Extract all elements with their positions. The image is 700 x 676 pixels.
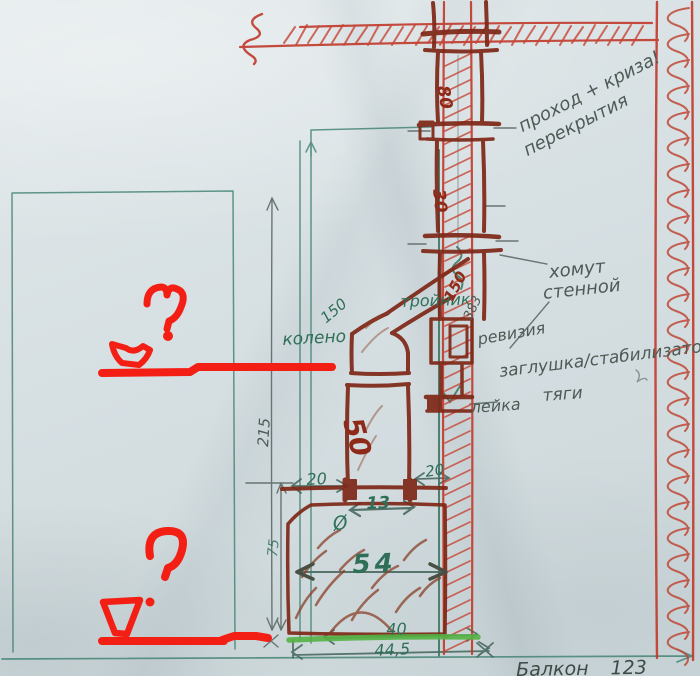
- dim-80: 80: [432, 84, 456, 111]
- funnel-label: лейка: [470, 395, 521, 417]
- sketch-drawing: [0, 0, 700, 676]
- ceiling-squiggle: [243, 14, 262, 64]
- dim-30: 30: [428, 188, 450, 214]
- dim-44-5: 44,5: [374, 639, 411, 660]
- balcony-label: Балкон 123: [516, 657, 647, 676]
- question-mark-icon: [149, 531, 183, 577]
- dim-75: 75: [265, 538, 283, 557]
- question-mark-icon: [147, 287, 183, 329]
- question-dot: [163, 331, 173, 341]
- border-line-left: [656, 2, 658, 658]
- dim-20-right: 20: [424, 460, 445, 480]
- border-squiggle: [668, 8, 689, 665]
- dim-20-left: 20: [306, 469, 327, 489]
- ceiling-line-top: [300, 23, 652, 27]
- cup-icon: [112, 344, 150, 365]
- green-room-rectangle: [12, 191, 235, 652]
- dim-40: 40: [386, 619, 407, 639]
- dim-54: 54: [352, 548, 397, 580]
- dim-13: 13: [366, 493, 390, 514]
- question-dot: [146, 598, 155, 607]
- level-line-upper: [102, 367, 332, 373]
- sketch-photo: проход + криза! перекрытия хомут стенной…: [0, 0, 700, 676]
- border-line-right: [692, 2, 693, 660]
- elbow-label: колено: [282, 327, 346, 350]
- plug-note-line2: тяги: [542, 383, 583, 406]
- dim-215: 215: [254, 417, 274, 447]
- cup-icon: [103, 600, 140, 634]
